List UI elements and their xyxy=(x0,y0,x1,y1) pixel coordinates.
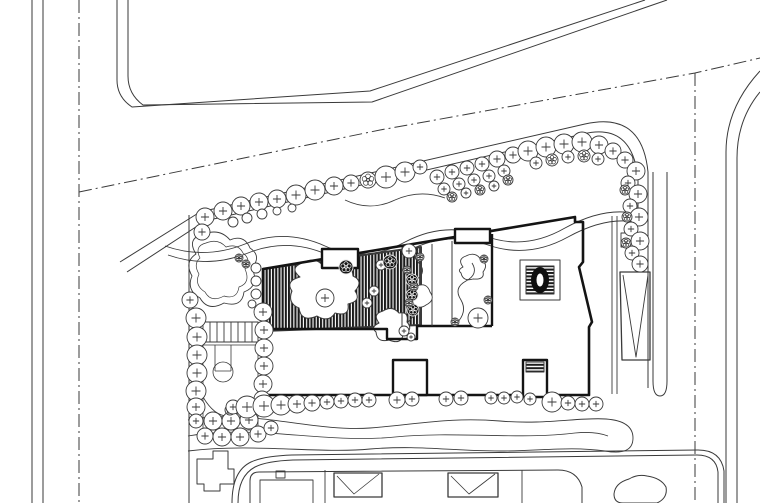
site-plan-drawing xyxy=(0,0,760,503)
site-plan-canvas xyxy=(0,0,760,503)
